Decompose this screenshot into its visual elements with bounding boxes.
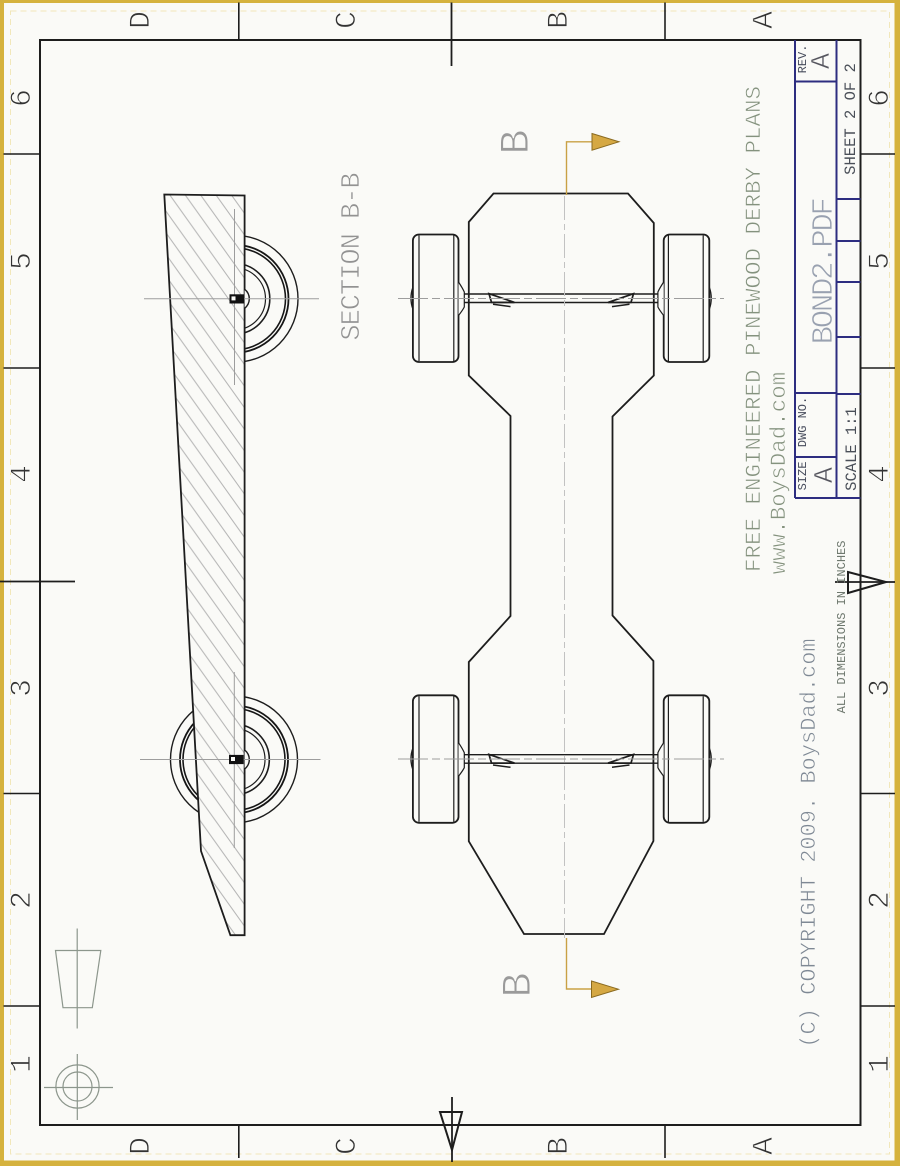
svg-text:4: 4 (6, 465, 40, 483)
svg-text:C: C (331, 1137, 365, 1155)
svg-text:D: D (125, 11, 159, 29)
svg-text:6: 6 (864, 89, 898, 107)
svg-text:B: B (493, 129, 541, 154)
svg-text:SECTION B-B: SECTION B-B (338, 173, 368, 341)
svg-text:(C) COPYRIGHT 2009. BoysDad.co: (C) COPYRIGHT 2009. BoysDad.com (797, 638, 822, 1047)
svg-text:www.BoysDad.com: www.BoysDad.com (766, 372, 792, 575)
svg-text:2: 2 (6, 891, 40, 909)
svg-text:5: 5 (864, 252, 898, 270)
svg-text:B: B (543, 11, 577, 29)
svg-text:SCALE 1:1: SCALE 1:1 (843, 407, 861, 491)
svg-text:3: 3 (6, 679, 40, 697)
svg-text:D: D (125, 1137, 159, 1155)
svg-text:BOND2.PDF: BOND2.PDF (807, 199, 842, 345)
svg-text:2: 2 (864, 891, 898, 909)
svg-text:1: 1 (6, 1055, 40, 1073)
svg-text:B: B (495, 972, 543, 997)
svg-text:C: C (331, 11, 365, 29)
svg-text:SHEET 2 OF 2: SHEET 2 OF 2 (842, 63, 860, 175)
svg-text:4: 4 (864, 465, 898, 483)
svg-text:5: 5 (6, 252, 40, 270)
svg-text:DWG NO.: DWG NO. (796, 397, 810, 447)
svg-text:A: A (808, 52, 838, 69)
svg-text:ALL DIMENSIONS IN INCHES: ALL DIMENSIONS IN INCHES (835, 541, 849, 714)
svg-text:SIZE: SIZE (796, 462, 810, 491)
svg-text:3: 3 (864, 679, 898, 697)
svg-text:FREE ENGINEERED PINEWOOD DERBY: FREE ENGINEERED PINEWOOD DERBY PLANS (741, 86, 767, 572)
svg-text:1: 1 (864, 1055, 898, 1073)
svg-text:A: A (811, 466, 841, 483)
svg-text:A: A (748, 11, 782, 29)
svg-text:B: B (543, 1137, 577, 1155)
svg-text:A: A (748, 1137, 782, 1155)
svg-text:6: 6 (6, 89, 40, 107)
